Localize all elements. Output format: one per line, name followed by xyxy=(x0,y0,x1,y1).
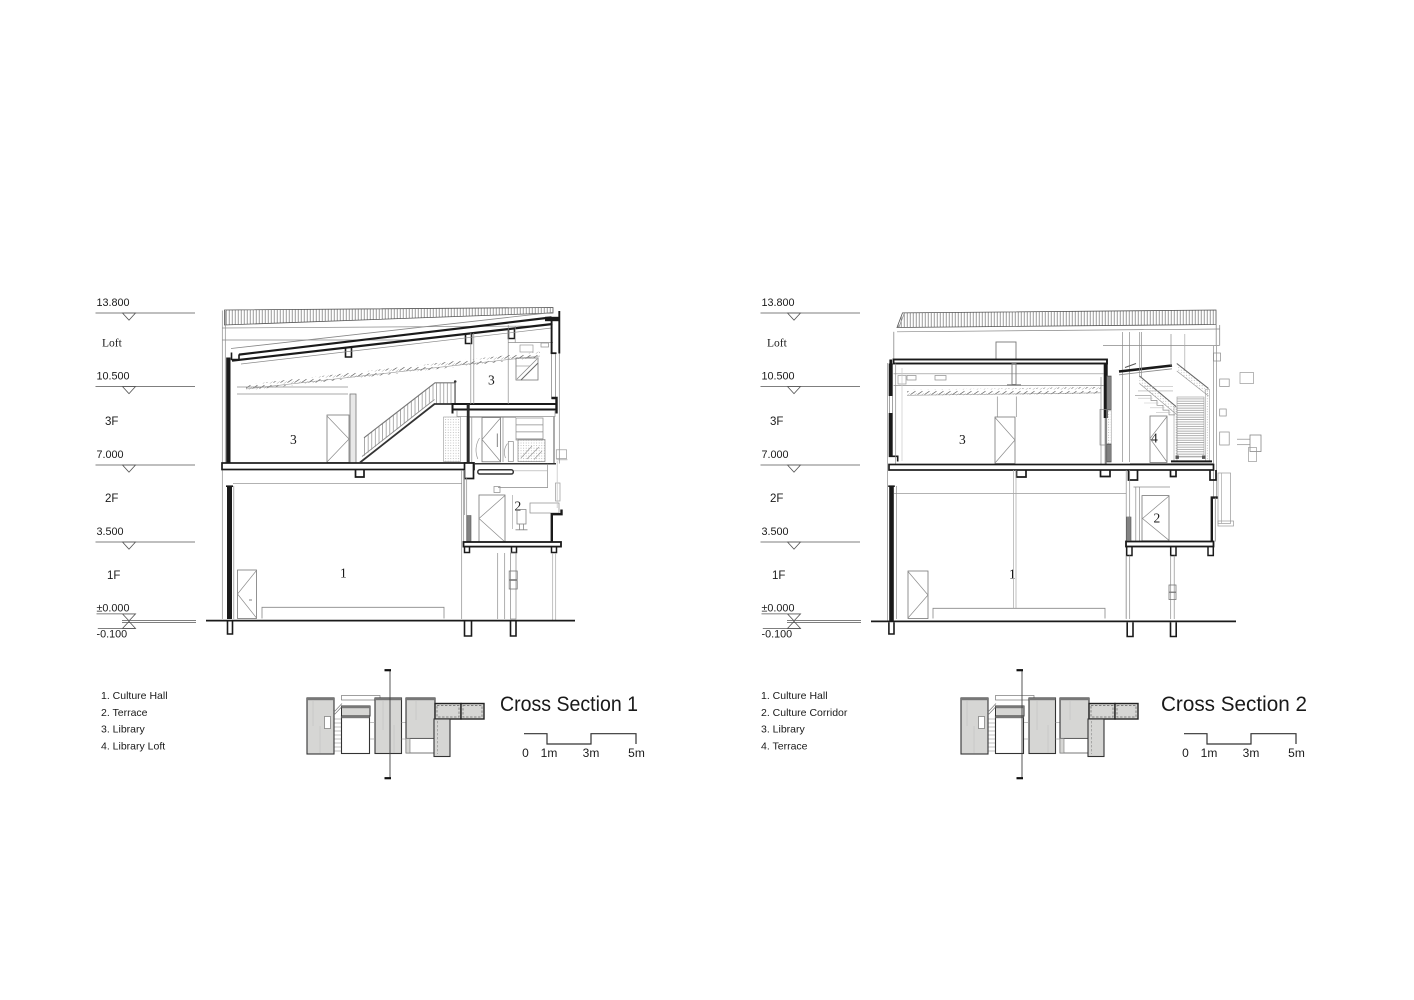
svg-text:2F: 2F xyxy=(770,493,783,505)
svg-text:2: 2 xyxy=(1154,511,1161,526)
svg-text:7.000: 7.000 xyxy=(762,449,789,461)
svg-text:10.500: 10.500 xyxy=(762,371,795,383)
svg-text:7.000: 7.000 xyxy=(97,449,124,461)
svg-text:3F: 3F xyxy=(105,416,118,428)
svg-text:1: 1 xyxy=(340,566,347,581)
svg-text:1m: 1m xyxy=(1201,746,1218,760)
svg-text:3: 3 xyxy=(959,432,966,447)
svg-text:3.500: 3.500 xyxy=(762,526,789,538)
svg-text:13.800: 13.800 xyxy=(97,297,130,309)
svg-text:5m: 5m xyxy=(628,746,645,760)
svg-text:3: 3 xyxy=(488,373,495,388)
svg-text:1F: 1F xyxy=(107,570,120,582)
svg-text:2: 2 xyxy=(515,499,522,514)
svg-text:Loft: Loft xyxy=(102,338,123,350)
svg-text:3m: 3m xyxy=(583,746,600,760)
svg-text:3F: 3F xyxy=(770,416,783,428)
svg-text:0: 0 xyxy=(522,746,529,760)
svg-text:2. Culture Corridor: 2. Culture Corridor xyxy=(761,707,848,719)
svg-text:1: 1 xyxy=(1009,567,1016,582)
svg-text:1F: 1F xyxy=(772,570,785,582)
svg-text:5m: 5m xyxy=(1288,746,1305,760)
svg-text:1. Culture Hall: 1. Culture Hall xyxy=(101,690,168,702)
svg-text:10.500: 10.500 xyxy=(97,371,130,383)
svg-text:Loft: Loft xyxy=(767,338,788,350)
svg-text:3m: 3m xyxy=(1243,746,1260,760)
svg-text:Cross Section 1: Cross Section 1 xyxy=(500,692,638,716)
svg-text:±0.000: ±0.000 xyxy=(762,603,795,615)
svg-text:-0.100: -0.100 xyxy=(97,629,128,641)
svg-text:0: 0 xyxy=(1182,746,1189,760)
svg-text:4. Library Loft: 4. Library Loft xyxy=(101,740,165,752)
svg-text:2F: 2F xyxy=(105,493,118,505)
svg-text:±0.000: ±0.000 xyxy=(97,603,130,615)
svg-text:13.800: 13.800 xyxy=(762,297,795,309)
svg-text:1m: 1m xyxy=(541,746,558,760)
svg-text:3: 3 xyxy=(290,432,297,447)
svg-text:3.500: 3.500 xyxy=(97,526,124,538)
svg-text:2. Terrace: 2. Terrace xyxy=(101,707,148,719)
svg-text:3. Library: 3. Library xyxy=(101,724,146,736)
svg-text:4. Terrace: 4. Terrace xyxy=(761,740,808,752)
svg-text:-0.100: -0.100 xyxy=(762,629,793,641)
svg-text:3. Library: 3. Library xyxy=(761,724,806,736)
svg-text:1. Culture Hall: 1. Culture Hall xyxy=(761,690,828,702)
svg-text:Cross Section 2: Cross Section 2 xyxy=(1161,692,1307,716)
